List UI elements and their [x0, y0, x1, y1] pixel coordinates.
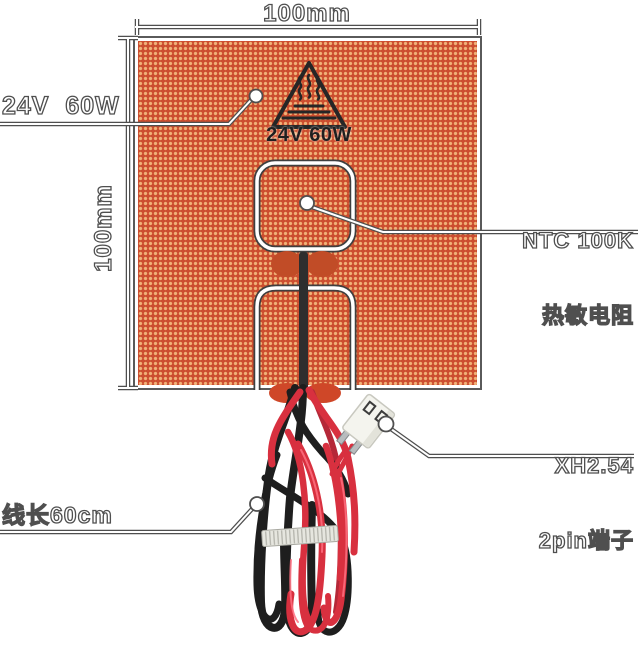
thermistor-callout-line1: NTC 100K	[522, 228, 634, 253]
power-rating-callout-label: 24V 60W	[2, 92, 120, 121]
width-dimension-label: 100mm	[237, 0, 377, 28]
height-dimension-label: 100mm	[90, 183, 118, 273]
pad-power-marking: 24V 60W	[247, 124, 371, 147]
cable-length-callout-label: 线长60cm	[2, 496, 113, 530]
thermistor-wire-black	[299, 252, 308, 390]
connector-callout-line2: 2pin端子	[539, 528, 634, 553]
thermistor-callout-label: NTC 100K 热敏电阻	[522, 178, 634, 378]
connector-callout-line1: XH2.54	[539, 453, 634, 478]
height-dimension-line	[118, 38, 138, 388]
connector-callout-circle	[379, 417, 394, 432]
wire-bundle	[257, 388, 355, 633]
thermistor-callout-line2: 热敏电阻	[522, 303, 634, 328]
cable-callout-circle	[250, 497, 264, 511]
heat-warning-triangle-icon	[273, 63, 345, 127]
connector-callout-label: XH2.54 2pin端子	[539, 403, 634, 603]
power-callout-dot	[250, 90, 263, 103]
heater-pad-product-diagram: 100mm 100mm 24V 60W NTC 100K 热敏电阻 XH2.54…	[0, 0, 640, 649]
cable-tie	[262, 525, 339, 546]
thermistor-callout-dot	[300, 196, 314, 210]
